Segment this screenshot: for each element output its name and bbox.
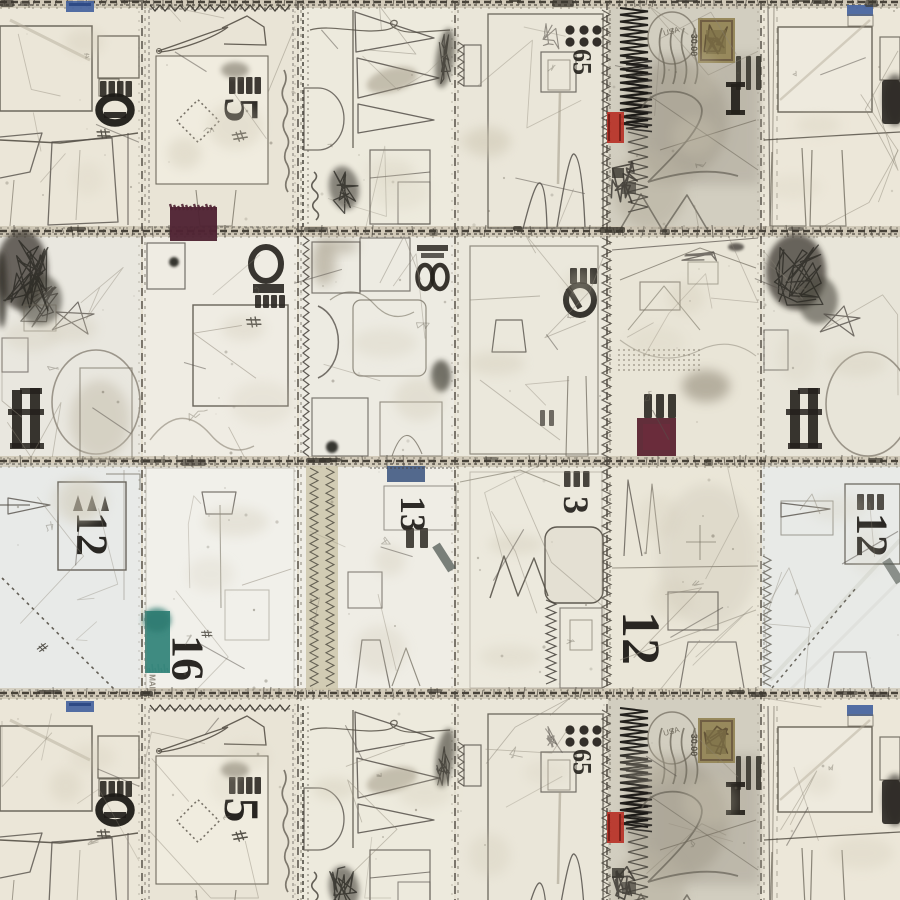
svg-text:13: 13 [393, 496, 433, 532]
svg-text:65: 65 [568, 49, 597, 75]
svg-text:12: 12 [611, 611, 671, 665]
svg-text:16: 16 [163, 635, 214, 681]
svg-text:MAIL: MAIL [148, 674, 157, 694]
svg-text:3: 3 [556, 496, 596, 514]
svg-text:65: 65 [568, 749, 597, 775]
